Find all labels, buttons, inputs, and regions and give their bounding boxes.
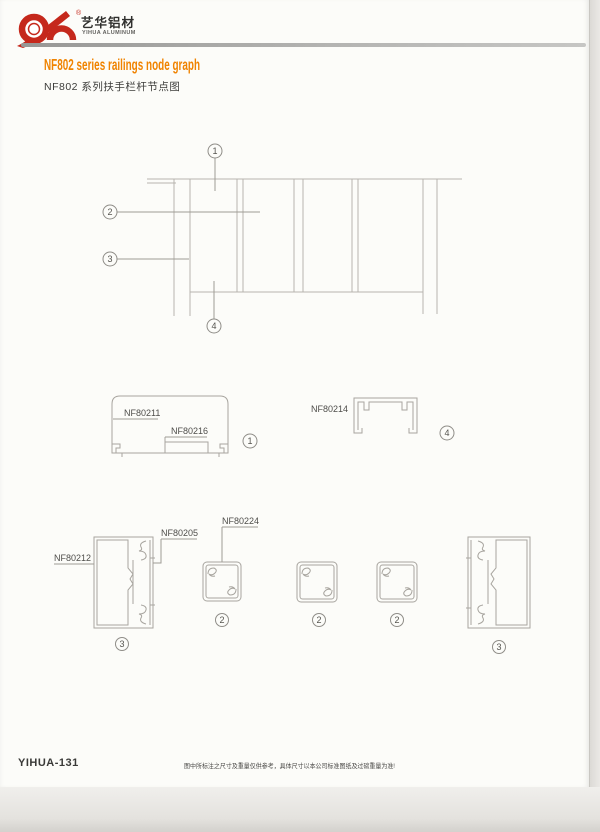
- scan-background-bottom: [0, 787, 600, 832]
- profile-square-baluster-b: 2: [297, 562, 337, 627]
- profile-post-section-left: NF80212 NF80205 3: [54, 528, 198, 651]
- post-outer-outline: [94, 537, 153, 628]
- post-clip-bottom: [139, 605, 146, 624]
- square-corner-clip-br: [404, 588, 412, 596]
- top-rail-insert-outline: [165, 437, 208, 453]
- elevation-lines: [147, 179, 462, 316]
- post-body-outline: [491, 540, 527, 625]
- post-clip-top: [478, 541, 485, 560]
- top-rail-foot-details: [112, 444, 228, 457]
- callout-2-section-b: 2: [313, 614, 326, 627]
- callout-4-number: 4: [444, 428, 449, 438]
- callout-2-number: 2: [394, 615, 399, 625]
- square-outer-outline: [297, 562, 337, 602]
- callout-3-section-right: 3: [493, 641, 506, 654]
- callout-4: 4: [207, 281, 221, 333]
- post-channel-lines: [466, 540, 488, 625]
- square-corner-clip-tl: [208, 568, 216, 576]
- callout-3-number: 3: [496, 642, 501, 652]
- callout-1-number: 1: [212, 146, 217, 156]
- profile-post-section-right: 3: [466, 537, 530, 654]
- part-label-nf80212: NF80212: [54, 553, 91, 563]
- part-label-nf80216: NF80216: [171, 426, 208, 436]
- channel-outer-outline: [354, 398, 417, 433]
- square-corner-clip-tl: [302, 568, 310, 576]
- square-outer-outline: [203, 562, 241, 601]
- post-clip-top: [139, 541, 146, 560]
- part-label-nf80205: NF80205: [161, 528, 198, 538]
- callout-1-section: 1: [243, 434, 257, 448]
- square-inner-outline: [300, 565, 334, 599]
- profile-channel-section: NF80214 4: [311, 398, 454, 440]
- profile-top-rail-section: NF80211 NF80216 1: [112, 396, 257, 457]
- callout-2-number: 2: [107, 207, 112, 217]
- square-label-leader: [222, 527, 258, 562]
- square-outer-outline: [377, 562, 417, 602]
- callout-2-number: 2: [316, 615, 321, 625]
- profile-square-baluster-a: NF80224 2: [203, 516, 259, 627]
- part-label-nf80224: NF80224: [222, 516, 259, 526]
- part-label-nf80214: NF80214: [311, 404, 348, 414]
- callout-2-number: 2: [219, 615, 224, 625]
- railing-elevation: 1 2 3 4: [103, 144, 462, 333]
- post-clip-bottom: [478, 605, 485, 624]
- callout-4-section: 4: [440, 426, 454, 440]
- callout-3-number: 3: [107, 254, 112, 264]
- square-inner-outline: [206, 565, 238, 598]
- callout-3-number: 3: [119, 639, 124, 649]
- footer-page-code: YIHUA-131: [18, 757, 79, 769]
- callout-2-section-a: 2: [216, 614, 229, 627]
- top-rail-outline: [112, 396, 228, 453]
- footer-disclaimer: 图中所标注之尺寸及重量仅供参考，具体尺寸以本公司标准图纸及过磅重量为准!: [184, 760, 395, 770]
- square-corner-clip-br: [324, 588, 332, 596]
- node-graph-drawing: 1 2 3 4 NF80211 NF80216 1: [0, 0, 600, 700]
- post-body-outline: [97, 540, 133, 625]
- channel-inner-outline: [358, 402, 413, 430]
- callout-1: 1: [208, 144, 222, 191]
- callout-2: 2: [103, 205, 260, 219]
- callout-3-section: 3: [116, 638, 129, 651]
- square-corner-clip-br: [228, 587, 236, 595]
- square-inner-outline: [380, 565, 414, 599]
- square-corner-clip-tl: [382, 568, 390, 576]
- callout-4-number: 4: [211, 321, 216, 331]
- callout-3: 3: [103, 252, 189, 266]
- callout-1-number: 1: [247, 436, 252, 446]
- profile-square-baluster-c: 2: [377, 562, 417, 627]
- post-outer-outline: [468, 537, 530, 628]
- callout-2-section-c: 2: [391, 614, 404, 627]
- part-label-nf80211: NF80211: [124, 408, 160, 418]
